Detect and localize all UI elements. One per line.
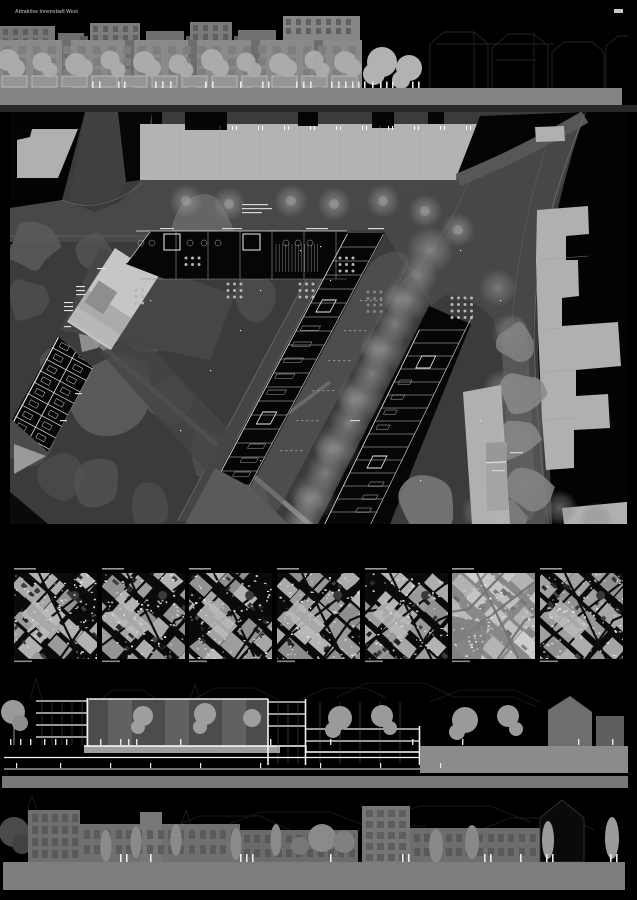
svg-text:Attraktive Innenstadt West: Attraktive Innenstadt West: [15, 9, 78, 15]
